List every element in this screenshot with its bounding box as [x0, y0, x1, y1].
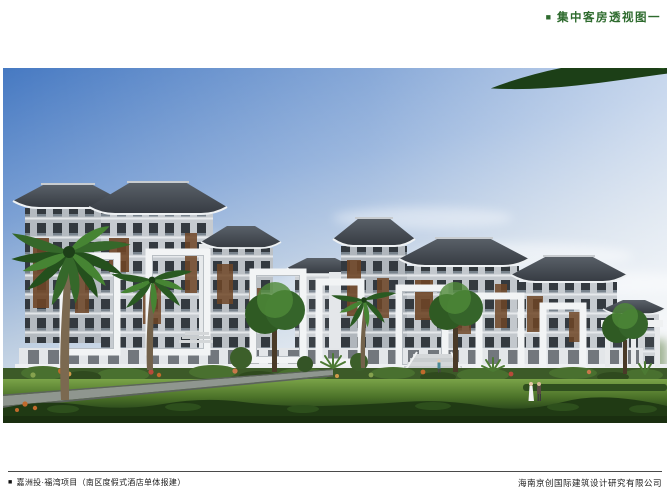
section-header: ■ 集中客房透视图一 — [546, 9, 661, 25]
company-label: 海南京创国际建筑设计研究有限公司 — [518, 478, 662, 488]
presentation-page: ■ 集中客房透视图一 — [0, 0, 670, 500]
footer-divider — [8, 471, 662, 472]
architectural-rendering — [3, 68, 667, 423]
section-marker-icon: ■ — [546, 13, 551, 22]
footer-company: 海南京创国际建筑设计研究有限公司 — [518, 477, 662, 489]
footer-project: ■ 嘉洲投·福湾项目（南区度假式酒店单体报建） — [8, 477, 186, 488]
page-title: 集中客房透视图一 — [557, 9, 661, 25]
rendering-canvas — [3, 68, 667, 423]
project-marker-icon: ■ — [8, 479, 13, 486]
project-label: 嘉洲投·福湾项目（南区度假式酒店单体报建） — [17, 477, 186, 488]
